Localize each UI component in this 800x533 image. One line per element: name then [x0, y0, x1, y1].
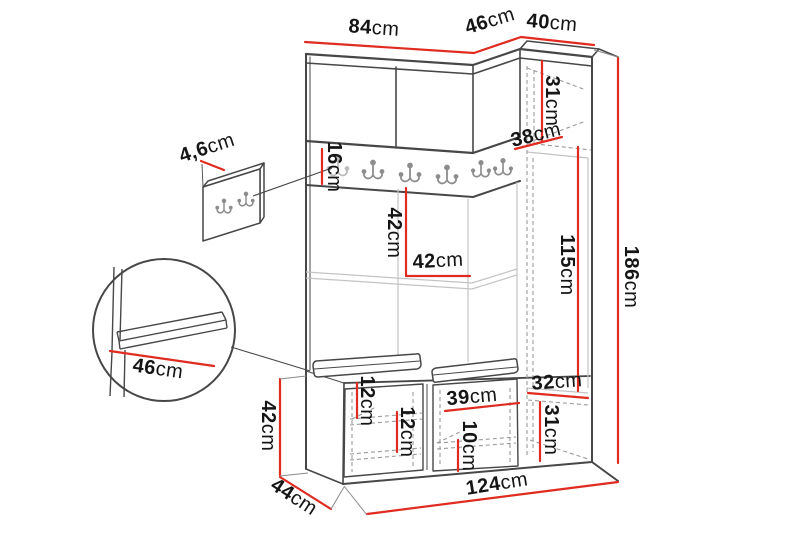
dim-label-right-bottom-height: 31cm	[541, 405, 561, 456]
dim-value: 84	[348, 15, 373, 39]
dim-line-top-left-width	[305, 42, 474, 53]
dim-unit: cm	[620, 281, 642, 309]
panel-leader-line	[253, 168, 332, 196]
dim-unit: cm	[383, 231, 405, 259]
dim-value: 12	[396, 407, 418, 430]
dim-unit: cm	[458, 444, 480, 472]
dim-label-top-right-width: 40cm	[526, 11, 578, 35]
dim-unit: cm	[371, 17, 400, 41]
dim-label-bench-left-gap-bottom: 12cm	[397, 407, 417, 458]
dim-value: 31	[541, 76, 563, 99]
dim-unit: cm	[549, 12, 578, 36]
coat-hook-icon	[472, 161, 490, 177]
dim-label-niche-height: 42cm	[384, 208, 404, 259]
dim-unit: cm	[554, 369, 583, 393]
dim-line-wall-panel-thickness	[201, 161, 224, 170]
hook-rail	[328, 158, 513, 184]
dim-label-bench-left-gap-top: 12cm	[357, 376, 377, 427]
dim-value: 32	[531, 371, 556, 395]
dim-unit: cm	[540, 428, 562, 456]
dim-value: 115	[556, 234, 578, 268]
coat-hook-icon	[400, 164, 421, 182]
dim-unit: cm	[499, 468, 530, 494]
dim-label-right-door-height: 115cm	[557, 234, 577, 295]
dim-unit: cm	[154, 358, 184, 384]
coat-hook-icon	[494, 159, 512, 175]
dim-unit: cm	[356, 399, 378, 427]
dimension-diagram: 84cm 46cm 40cm 31cm 38cm 115cm 186cm 4,6…	[0, 0, 800, 533]
dim-value: 10	[458, 421, 480, 444]
dim-label-bench-right-width: 39cm	[446, 385, 498, 409]
dim-value: 42	[412, 250, 436, 273]
dim-value: 16	[323, 142, 345, 165]
dim-label-bench-right-gap: 10cm	[459, 421, 479, 472]
dim-value: 186	[620, 246, 642, 281]
detail-leader-line	[231, 347, 310, 371]
dim-value: 42	[257, 401, 279, 424]
dim-value: 40	[526, 10, 551, 34]
dim-label-bench-height: 42cm	[258, 401, 278, 452]
dim-label-niche-width: 42cm	[412, 250, 464, 273]
coat-hook-icon	[363, 161, 384, 179]
cabinet-bottom-side	[592, 462, 618, 481]
dim-label-right-bottom-width: 32cm	[531, 370, 583, 394]
dim-value: 12	[356, 376, 378, 399]
dim-value: 42	[383, 208, 405, 231]
dim-unit: cm	[396, 430, 418, 458]
dim-unit: cm	[469, 384, 498, 408]
dim-label-top-left-width: 84cm	[348, 16, 400, 40]
dim-unit: cm	[257, 424, 279, 452]
bench-cushions	[313, 354, 518, 382]
panel-extension-line	[202, 164, 203, 187]
dim-unit: cm	[435, 249, 464, 272]
coat-hook-icon	[437, 166, 458, 184]
wall-hook-panel	[202, 163, 332, 241]
dim-unit: cm	[323, 165, 345, 193]
bench-side-bottom	[306, 469, 343, 484]
dim-label-hook-rail-height: 16cm	[324, 142, 344, 193]
dim-unit: cm	[556, 268, 578, 296]
detail-circle	[93, 259, 310, 401]
dim-value: 39	[446, 386, 471, 410]
top-edge-inner	[306, 58, 592, 74]
dim-label-total-height: 186cm	[621, 246, 641, 309]
dim-value: 31	[540, 405, 562, 428]
